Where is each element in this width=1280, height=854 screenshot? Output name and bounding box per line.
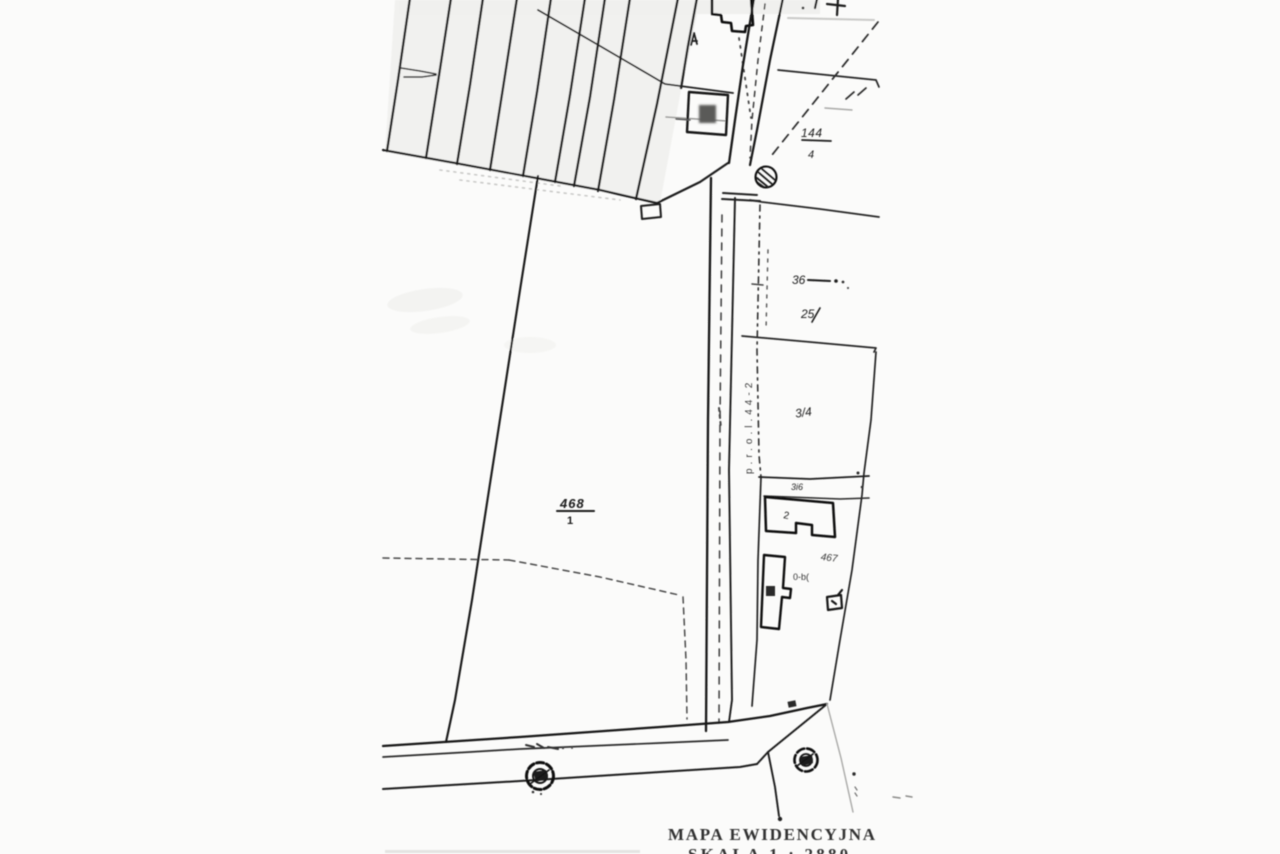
svg-text:p.r.o.l.44-2: p.r.o.l.44-2 xyxy=(744,379,755,474)
svg-text:468: 468 xyxy=(559,496,585,511)
svg-text:4: 4 xyxy=(808,149,814,161)
svg-text:MAPA EWIDENCYJNA: MAPA EWIDENCYJNA xyxy=(668,825,877,844)
svg-text:25: 25 xyxy=(800,307,815,321)
svg-text:144: 144 xyxy=(801,126,823,140)
svg-text:3i6: 3i6 xyxy=(791,482,803,492)
svg-text:36: 36 xyxy=(792,273,806,287)
svg-text:1: 1 xyxy=(567,515,573,527)
svg-text:467: 467 xyxy=(820,552,838,565)
svg-text:0-b(: 0-b( xyxy=(793,572,809,582)
svg-text:3/4: 3/4 xyxy=(794,404,813,420)
svg-text:SKALA 1 : 2880: SKALA 1 : 2880 xyxy=(688,845,851,854)
